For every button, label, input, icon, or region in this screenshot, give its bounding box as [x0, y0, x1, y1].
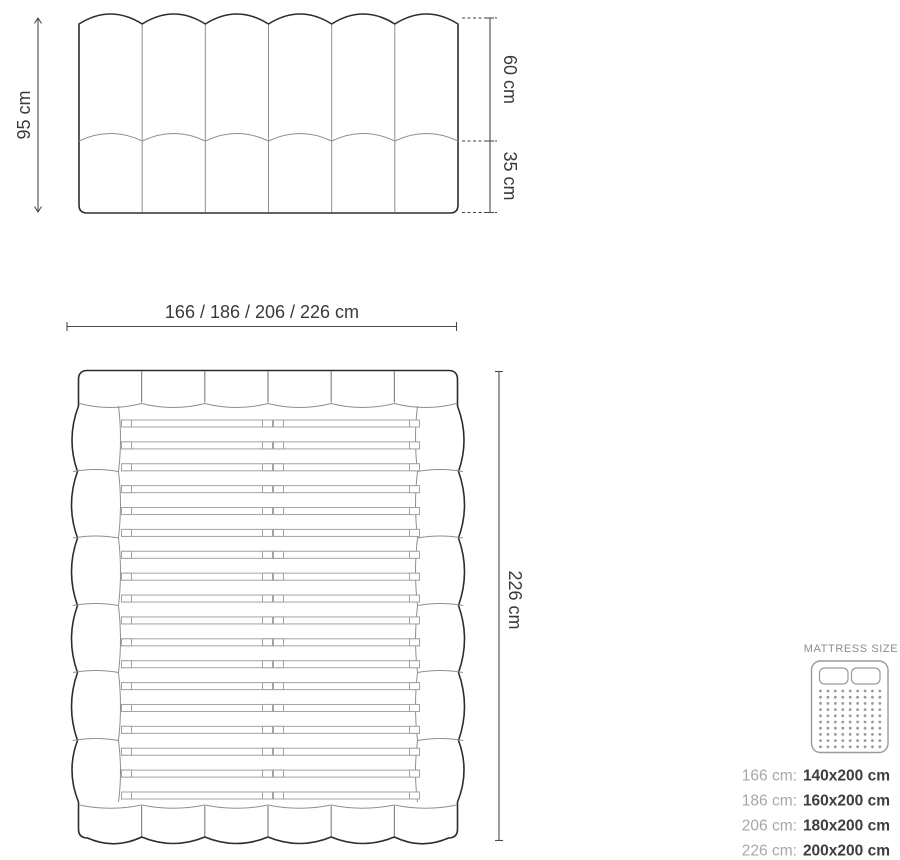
mattress-dot [834, 739, 837, 742]
mattress-dot [827, 745, 830, 748]
slat-cap [122, 704, 132, 711]
mattress-size-value: 140x200 cm [803, 768, 890, 785]
slat-cap [274, 442, 284, 449]
slat-bar-left [122, 508, 273, 515]
size-row: 166 cm:140x200 cm [742, 768, 890, 785]
slat-row [122, 573, 420, 580]
mattress-dot [864, 727, 867, 730]
size-row: 186 cm:160x200 cm [742, 793, 890, 810]
slat-row [122, 639, 420, 646]
mattress-dot [871, 708, 874, 711]
slat-cap [122, 661, 132, 668]
slat-cap [263, 748, 273, 755]
mattress-dot [834, 708, 837, 711]
slat-cap [274, 595, 284, 602]
pillow-left [820, 668, 849, 684]
slat-row [122, 529, 420, 536]
mattress-dot [827, 721, 830, 724]
slat-cap [410, 442, 420, 449]
slat-cap [410, 704, 420, 711]
slat-cap [263, 726, 273, 733]
slat-cap [410, 573, 420, 580]
slat-row [122, 551, 420, 558]
mattress-dot [834, 721, 837, 724]
mattress-dot [864, 702, 867, 705]
mattress-dot [819, 702, 822, 705]
mattress-dot [827, 696, 830, 699]
slat-row [122, 661, 420, 668]
slat-cap [274, 704, 284, 711]
slat-cap [274, 661, 284, 668]
frame-width-label: 226 cm: [742, 843, 797, 860]
slat-cap [263, 486, 273, 493]
slat-cap [122, 639, 132, 646]
mattress-dot [819, 745, 822, 748]
mattress-dot [834, 714, 837, 717]
mattress-dot [834, 702, 837, 705]
slat-cap [122, 486, 132, 493]
frame-width-label: 206 cm: [742, 818, 797, 835]
mattress-size-value: 180x200 cm [803, 818, 890, 835]
size-row: 226 cm:200x200 cm [742, 843, 890, 860]
mattress-dot [878, 690, 881, 693]
mattress-dot [878, 721, 881, 724]
mattress-dot [878, 696, 881, 699]
headboard-front-view: 95 cm 60 cm 35 cm [14, 14, 520, 213]
slat-bar-left [122, 464, 273, 471]
mattress-dot [841, 708, 844, 711]
mattress-dot [878, 727, 881, 730]
slat-cap [263, 442, 273, 449]
mattress-dot [849, 690, 852, 693]
slat-cap [263, 551, 273, 558]
mattress-dot [856, 721, 859, 724]
mattress-size-list: 166 cm:140x200 cm 186 cm:160x200 cm 206 … [742, 768, 890, 860]
slat-bar-right [274, 420, 420, 427]
mattress-dot [878, 733, 881, 736]
slat-cap [122, 726, 132, 733]
slat-cap [274, 551, 284, 558]
mattress-dot [841, 733, 844, 736]
slat-cap [122, 551, 132, 558]
slat-row [122, 792, 420, 799]
slat-cap [410, 748, 420, 755]
slat-bar-right [274, 464, 420, 471]
slat-cap [122, 770, 132, 777]
slat-cap [263, 573, 273, 580]
mattress-dot [841, 690, 844, 693]
dim-sections: 60 cm 35 cm [462, 18, 520, 213]
mattress-dot [878, 702, 881, 705]
slat-bar-left [122, 639, 273, 646]
slat-row [122, 420, 420, 427]
slat-bar-left [122, 748, 273, 755]
slat-cap [263, 595, 273, 602]
mattress-dot [864, 721, 867, 724]
mattress-dot [871, 714, 874, 717]
slat-cap [122, 464, 132, 471]
slat-cap [263, 617, 273, 624]
slat-cap [263, 661, 273, 668]
frame-width-label: 166 cm: [742, 768, 797, 785]
slat-cap [410, 661, 420, 668]
slat-row [122, 748, 420, 755]
mattress-dot [841, 721, 844, 724]
slat-row [122, 486, 420, 493]
legend-title: MATTRESS SIZE [804, 643, 898, 655]
bed-dimensions-page: 95 cm 60 cm 35 cm 166 / 186 / 206 / 226 … [0, 0, 900, 860]
bed-top-view: 166 / 186 / 206 / 226 cm 226 cm [67, 302, 525, 844]
slat-cap [410, 595, 420, 602]
mattress-dot [871, 721, 874, 724]
mattress-dot [864, 714, 867, 717]
slat-bar-left [122, 529, 273, 536]
mattress-dot [841, 714, 844, 717]
dim-label-95cm: 95 cm [14, 90, 34, 139]
slat-bar-left [122, 551, 273, 558]
slat-bar-right [274, 617, 420, 624]
slat-row [122, 683, 420, 690]
slat-bar-left [122, 420, 273, 427]
slat-cap [122, 573, 132, 580]
slat-bar-left [122, 486, 273, 493]
size-row: 206 cm:180x200 cm [742, 818, 890, 835]
mattress-dot [856, 733, 859, 736]
mattress-dot [871, 696, 874, 699]
mattress-dot [819, 714, 822, 717]
slat-cap [410, 486, 420, 493]
slat-bar-right [274, 551, 420, 558]
slat-bar-right [274, 573, 420, 580]
mattress-dot [856, 690, 859, 693]
mattress-dot [819, 721, 822, 724]
slat-row [122, 704, 420, 711]
slat-bar-left [122, 683, 273, 690]
slat-row [122, 726, 420, 733]
slat-cap [410, 726, 420, 733]
slat-cap [274, 486, 284, 493]
slat-bar-left [122, 595, 273, 602]
slat-cap [122, 442, 132, 449]
slat-cap [274, 792, 284, 799]
slat-cap [122, 595, 132, 602]
slat-bar-right [274, 683, 420, 690]
slat-cap [122, 748, 132, 755]
dim-label-35cm: 35 cm [500, 151, 520, 200]
mattress-dot [819, 733, 822, 736]
slat-cap [122, 792, 132, 799]
slat-cap [263, 704, 273, 711]
slat-bar-left [122, 704, 273, 711]
slat-bar-left [122, 770, 273, 777]
mattress-dot [856, 727, 859, 730]
slat-bar-left [122, 617, 273, 624]
mattress-dot [849, 727, 852, 730]
slat-cap [274, 683, 284, 690]
mattress-size-value: 160x200 cm [803, 793, 890, 810]
slat-cap [410, 617, 420, 624]
mattress-dot [834, 727, 837, 730]
slat-cap [274, 617, 284, 624]
slat-cap [274, 508, 284, 515]
mattress-dot [834, 696, 837, 699]
mattress-dot [834, 733, 837, 736]
mattress-dot [878, 745, 881, 748]
slat-cap [122, 420, 132, 427]
mattress-dot [827, 733, 830, 736]
slat-bar-right [274, 704, 420, 711]
dim-length: 226 cm [495, 372, 525, 841]
mattress-size-value: 200x200 cm [803, 843, 890, 860]
mattress-dot [864, 708, 867, 711]
mattress-dot [849, 696, 852, 699]
dim-width: 166 / 186 / 206 / 226 cm [67, 302, 457, 331]
mattress-dot [849, 733, 852, 736]
mattress-dot [827, 714, 830, 717]
slat-bar-right [274, 792, 420, 799]
mattress-dot [827, 727, 830, 730]
dim-label-60cm: 60 cm [500, 55, 520, 104]
pillow-right [852, 668, 881, 684]
bed-dimensions-diagram: 95 cm 60 cm 35 cm 166 / 186 / 206 / 226 … [0, 0, 900, 860]
slat-cap [274, 529, 284, 536]
slat-cap [274, 573, 284, 580]
slat-cap [263, 508, 273, 515]
slat-row [122, 442, 420, 449]
mattress-dot [871, 733, 874, 736]
mattress-dot [849, 739, 852, 742]
slat-bar-left [122, 726, 273, 733]
slat-row [122, 617, 420, 624]
slat-bar-left [122, 573, 273, 580]
mattress-dot [827, 739, 830, 742]
mattress-dot [819, 739, 822, 742]
slat-cap [410, 792, 420, 799]
slat-bar-right [274, 748, 420, 755]
dim-label-widths: 166 / 186 / 206 / 226 cm [165, 302, 359, 322]
slat-cap [274, 639, 284, 646]
slat-cap [274, 420, 284, 427]
slat-row [122, 770, 420, 777]
mattress-dot [827, 690, 830, 693]
slat-bar-left [122, 661, 273, 668]
slat-cap [274, 726, 284, 733]
slat-bar-left [122, 442, 273, 449]
dim-label-226cm: 226 cm [505, 570, 525, 629]
dim-total-height: 95 cm [14, 18, 42, 212]
slat-cap [263, 420, 273, 427]
mattress-dot [871, 745, 874, 748]
slat-cap [274, 770, 284, 777]
mattress-dot [856, 696, 859, 699]
slat-bar-right [274, 770, 420, 777]
slat-bar-right [274, 595, 420, 602]
mattress-dot [871, 727, 874, 730]
mattress-dot [819, 708, 822, 711]
mattress-dot [841, 702, 844, 705]
slat-cap [410, 683, 420, 690]
mattress-icon [812, 661, 889, 753]
mattress-dot [841, 739, 844, 742]
slat-cap [263, 639, 273, 646]
slat-cap [410, 639, 420, 646]
slat-cap [263, 770, 273, 777]
mattress-dot [849, 714, 852, 717]
slat-cap [263, 683, 273, 690]
mattress-dot [827, 702, 830, 705]
slat-cap [122, 529, 132, 536]
mattress-dot [864, 690, 867, 693]
slat-bar-right [274, 486, 420, 493]
mattress-dot [849, 708, 852, 711]
mattress-dot [856, 745, 859, 748]
mattress-dot [819, 690, 822, 693]
mattress-dot [871, 690, 874, 693]
mattress-dot [827, 708, 830, 711]
mattress-dot [841, 745, 844, 748]
slat-cap [410, 420, 420, 427]
slat-bar-right [274, 529, 420, 536]
mattress-dot [849, 745, 852, 748]
mattress-dot [878, 739, 881, 742]
slat-cap [263, 792, 273, 799]
mattress-dot [864, 733, 867, 736]
mattress-dot [878, 708, 881, 711]
slat-cap [410, 770, 420, 777]
mattress-dot [841, 727, 844, 730]
mattress-dot [856, 702, 859, 705]
slat-bar-right [274, 661, 420, 668]
mattress-dot [819, 696, 822, 699]
slat-cap [410, 508, 420, 515]
mattress-size-legend: MATTRESS SIZE 166 cm:140x200 cm 186 cm:1… [742, 643, 898, 860]
slat-row [122, 508, 420, 515]
slat-bar-left [122, 792, 273, 799]
slat-cap [274, 748, 284, 755]
mattress-dot [834, 690, 837, 693]
slat-row [122, 595, 420, 602]
mattress-dot [849, 702, 852, 705]
mattress-dot [871, 739, 874, 742]
mattress-dot [856, 739, 859, 742]
slat-bar-right [274, 639, 420, 646]
slat-cap [274, 464, 284, 471]
slat-bar-right [274, 442, 420, 449]
mattress-dot [819, 727, 822, 730]
slat-bar-right [274, 508, 420, 515]
mattress-dot [864, 745, 867, 748]
mattress-dot [864, 739, 867, 742]
mattress-dot [864, 696, 867, 699]
mattress-dot [878, 714, 881, 717]
slat-cap [122, 508, 132, 515]
slat-row [122, 464, 420, 471]
mattress-dot [871, 702, 874, 705]
mattress-dot [856, 714, 859, 717]
slat-cap [263, 529, 273, 536]
slat-cap [410, 464, 420, 471]
mattress-dot [849, 721, 852, 724]
mattress-dot [841, 696, 844, 699]
slat-cap [122, 683, 132, 690]
mattress-dot [834, 745, 837, 748]
slat-bar-right [274, 726, 420, 733]
slat-cap [410, 529, 420, 536]
slat-cap [122, 617, 132, 624]
slat-cap [263, 464, 273, 471]
mattress-dot [856, 708, 859, 711]
slat-cap [410, 551, 420, 558]
frame-width-label: 186 cm: [742, 793, 797, 810]
